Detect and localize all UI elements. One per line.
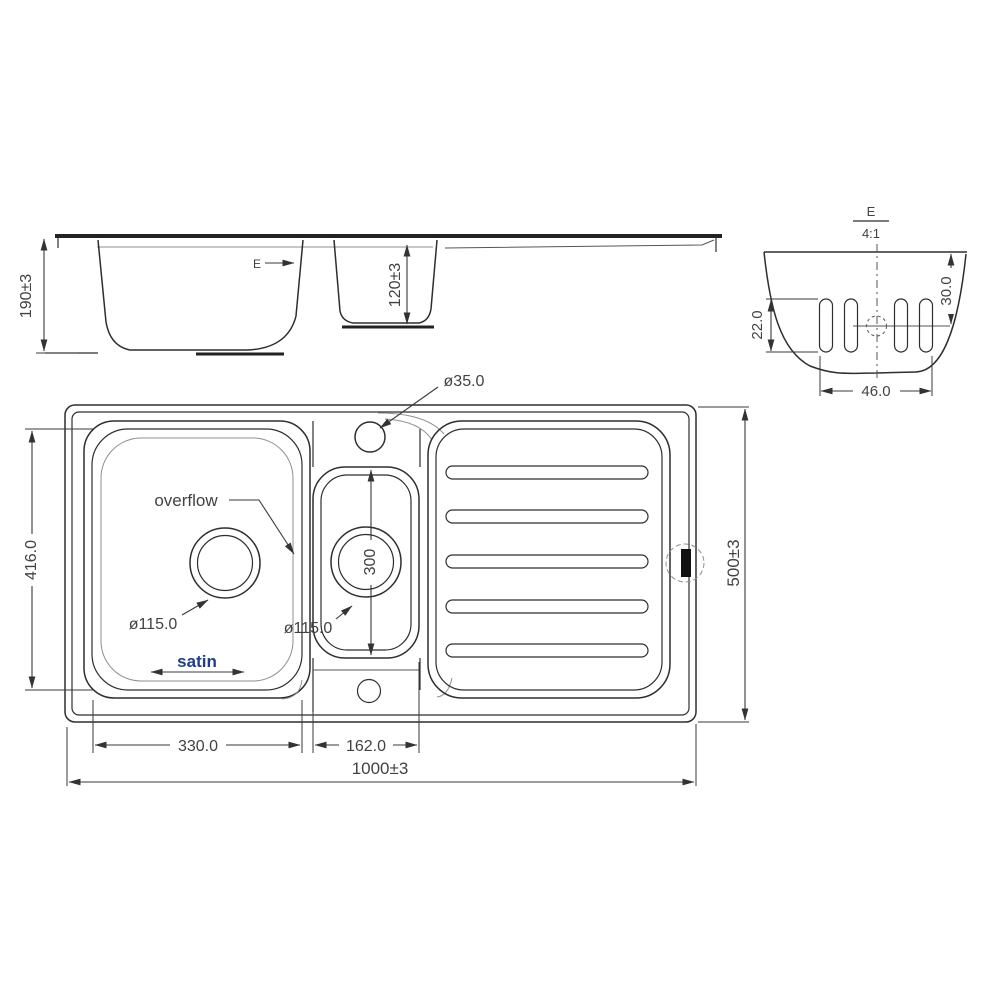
small-bowl-width-dim: 162.0 xyxy=(346,738,386,755)
main-bowl-profile xyxy=(98,240,303,350)
overall-depth-dim: 500±3 xyxy=(724,539,743,586)
drainer-groove xyxy=(446,510,648,523)
main-bowl-top-edge xyxy=(92,429,302,690)
plan-view: overflow ø115.0 ø115.0 satin ø35.0 300 4… xyxy=(23,373,749,786)
main-bowl-base-edge xyxy=(101,438,293,681)
detail-view-label: E xyxy=(867,204,876,219)
drainer-groove xyxy=(446,555,648,568)
drainer-inner-edge xyxy=(436,429,662,690)
side-view-small-bowl-depth-dim: 120±3 xyxy=(387,263,404,307)
small-bowl-profile xyxy=(334,240,437,323)
detail-marker-letter: E xyxy=(253,257,261,271)
side-view-height-dim: 190±3 xyxy=(18,274,35,318)
overall-width-dim: 1000±3 xyxy=(352,759,409,778)
detail-slot-height-dim: 22.0 xyxy=(749,310,766,339)
detail-view-scale: 4:1 xyxy=(862,226,880,241)
main-drain-outer xyxy=(190,528,260,598)
detail-bowl-corner-outline xyxy=(764,252,966,373)
main-drain-inner xyxy=(198,536,253,591)
small-drain-leader xyxy=(336,606,352,619)
drainer-groove xyxy=(446,600,648,613)
tap-hole-dim-label: ø35.0 xyxy=(444,373,485,390)
small-bowl-length-dim: 300 xyxy=(362,549,379,576)
drainer-profile xyxy=(445,240,714,248)
small-drain-dim-label: ø115.0 xyxy=(284,620,333,637)
detail-offset-dim: 30.0 xyxy=(938,276,955,305)
side-view: 190±3 120±3 E xyxy=(18,236,722,354)
main-drain-leader xyxy=(182,600,208,615)
detail-view: E 4:1 22.0 30.0 46.0 xyxy=(749,204,967,400)
tap-hole-leader xyxy=(380,387,438,428)
overflow-hole-mark xyxy=(681,549,691,577)
second-tap-hole xyxy=(358,680,381,703)
overflow-slot xyxy=(820,299,833,352)
tap-hole xyxy=(355,422,385,452)
drainer-grooves xyxy=(446,466,648,657)
sink-technical-drawing: 190±3 120±3 E E 4:1 22.0 30.0 46 xyxy=(0,0,1000,1000)
detail-width-dim: 46.0 xyxy=(861,383,890,400)
sink-outline-outer xyxy=(65,405,696,722)
overflow-label: overflow xyxy=(154,491,218,510)
overflow-leader xyxy=(229,500,294,554)
drainer-groove xyxy=(446,466,648,479)
main-bowl-width-dim: 330.0 xyxy=(178,738,218,755)
drainer-groove xyxy=(446,644,648,657)
finish-label: satin xyxy=(177,652,217,671)
main-drain-dim-label: ø115.0 xyxy=(129,616,178,633)
main-bowl-length-dim: 416.0 xyxy=(23,540,40,580)
